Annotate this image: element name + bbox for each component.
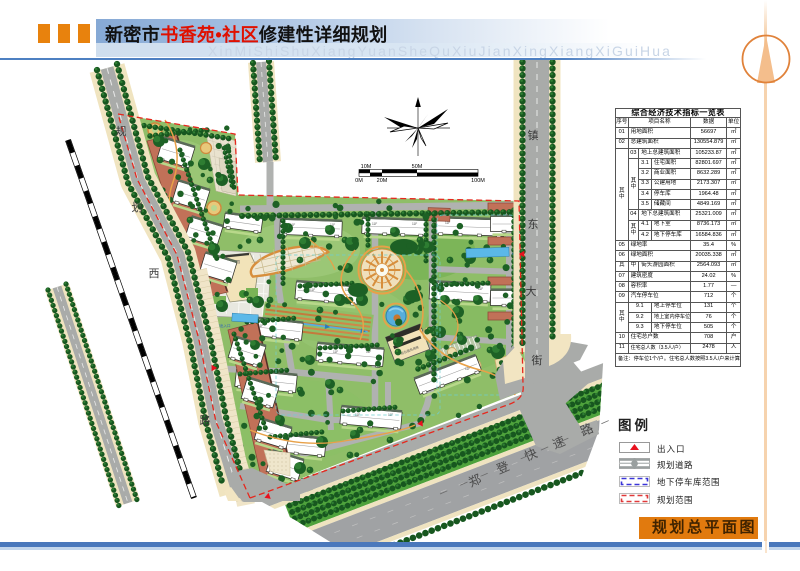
svg-text:0M: 0M xyxy=(355,178,363,184)
svg-text:大: 大 xyxy=(526,284,537,298)
svg-text:100M: 100M xyxy=(471,178,485,184)
svg-text:11F: 11F xyxy=(333,350,338,354)
svg-text:镇: 镇 xyxy=(528,128,539,142)
svg-text:西: 西 xyxy=(149,268,160,280)
svg-text:10M: 10M xyxy=(361,164,372,170)
svg-text:11F: 11F xyxy=(310,288,315,292)
svg-text:11F: 11F xyxy=(372,222,377,226)
svg-text:50M: 50M xyxy=(412,164,423,170)
svg-text:东: 东 xyxy=(528,218,539,231)
svg-text:20M: 20M xyxy=(377,178,388,184)
svg-text:划: 划 xyxy=(132,201,143,214)
svg-text:街: 街 xyxy=(532,353,543,367)
svg-text:路: 路 xyxy=(200,414,211,427)
svg-text:规: 规 xyxy=(116,124,127,138)
svg-text:11F: 11F xyxy=(412,222,417,226)
